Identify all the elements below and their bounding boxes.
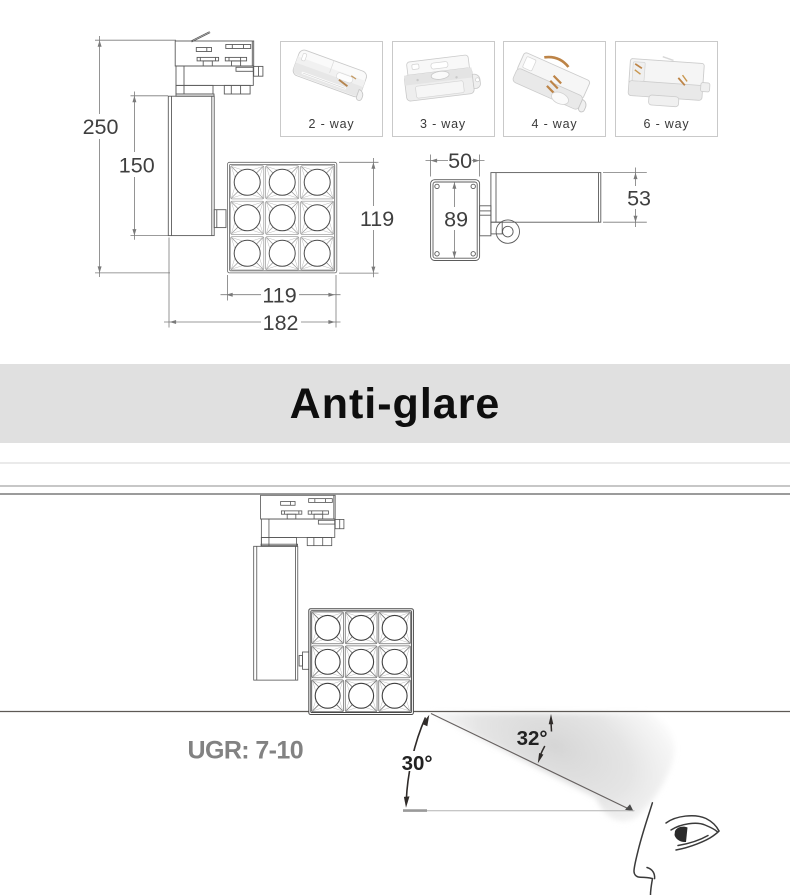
svg-text:119: 119 (262, 284, 296, 308)
svg-text:53: 53 (627, 187, 651, 211)
svg-text:250: 250 (83, 115, 119, 139)
svg-text:182: 182 (263, 311, 299, 335)
svg-text:150: 150 (119, 154, 155, 178)
svg-text:32°: 32° (517, 727, 548, 750)
svg-text:UGR: 7-10: UGR: 7-10 (188, 737, 303, 765)
svg-text:89: 89 (444, 208, 468, 232)
svg-text:30°: 30° (402, 752, 433, 775)
svg-text:50: 50 (448, 149, 472, 173)
svg-text:119: 119 (360, 207, 394, 231)
